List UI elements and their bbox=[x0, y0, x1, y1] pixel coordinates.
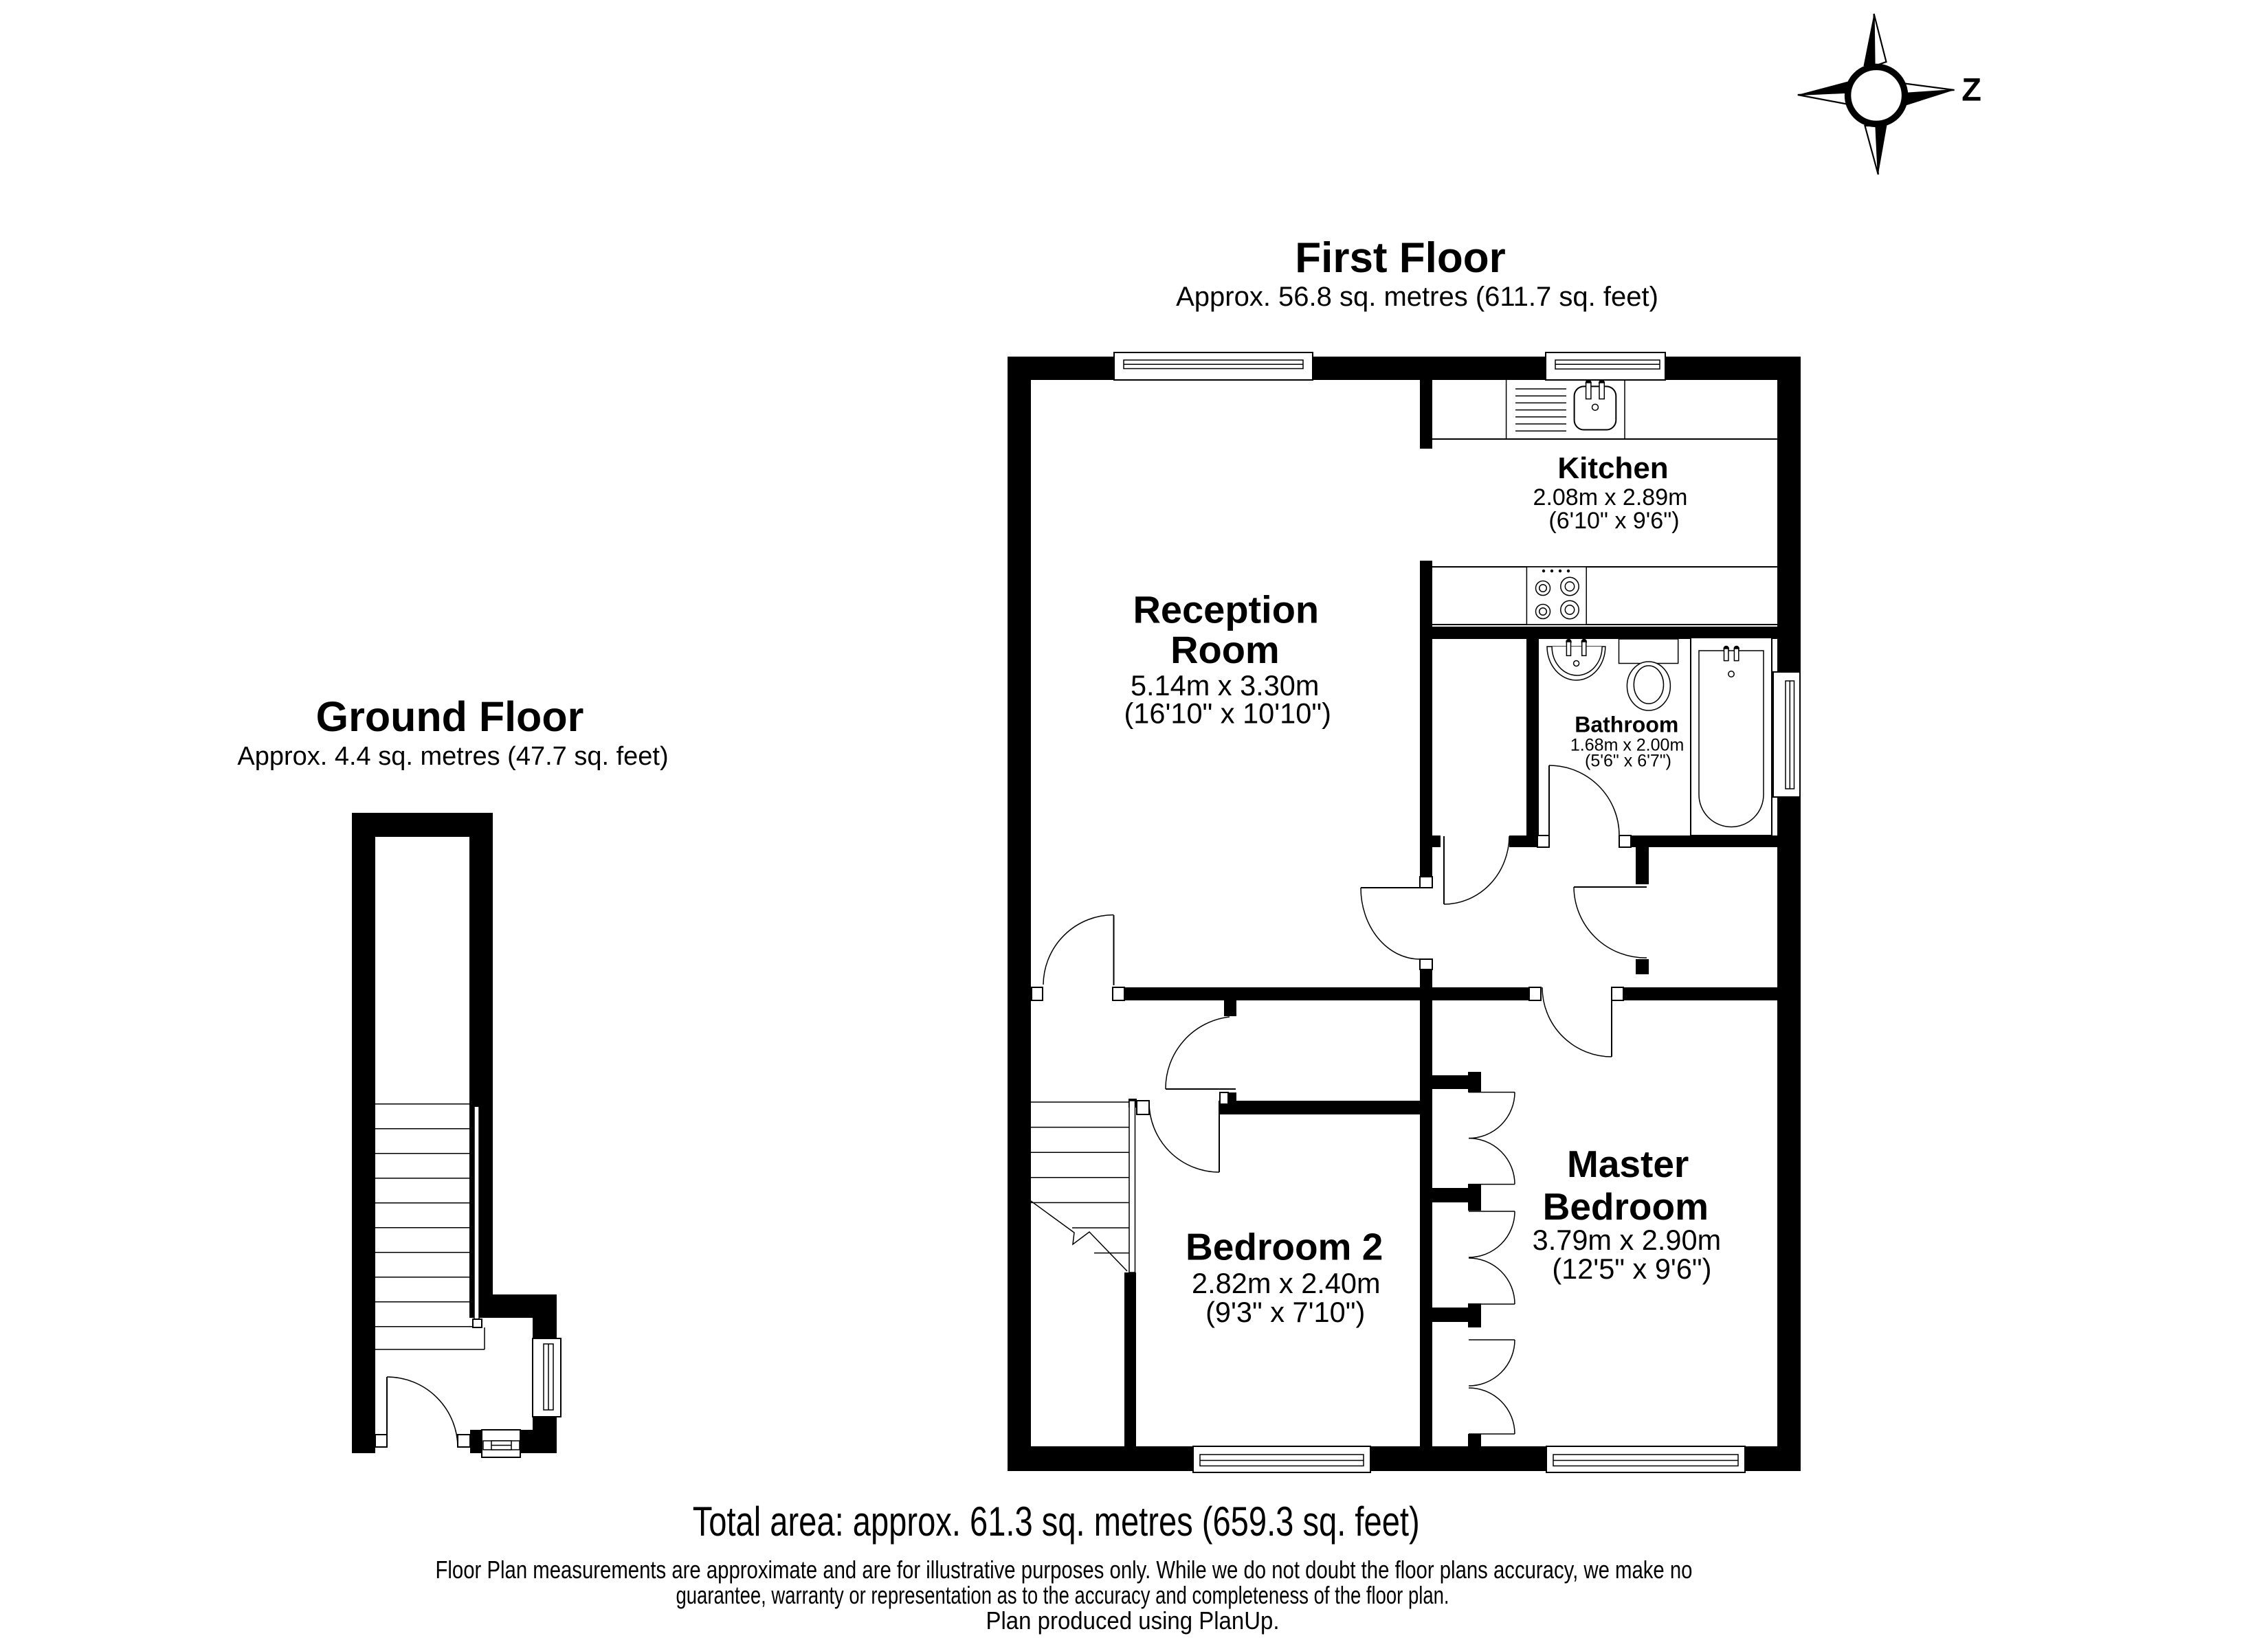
svg-text:Ground Floor: Ground Floor bbox=[316, 693, 584, 740]
svg-text:(5'6" x 6'7"): (5'6" x 6'7") bbox=[1585, 752, 1671, 771]
svg-text:First Floor: First Floor bbox=[1295, 234, 1506, 282]
svg-text:Master: Master bbox=[1567, 1143, 1689, 1185]
svg-text:Z: Z bbox=[1961, 71, 1981, 108]
svg-text:Total area: approx. 61.3 sq. m: Total area: approx. 61.3 sq. metres (659… bbox=[693, 1499, 1420, 1545]
svg-text:Room: Room bbox=[1170, 628, 1280, 671]
svg-text:Reception: Reception bbox=[1133, 588, 1319, 631]
svg-text:2.08m x 2.89m: 2.08m x 2.89m bbox=[1533, 484, 1688, 511]
svg-text:guarantee, warranty or represe: guarantee, warranty or representation as… bbox=[676, 1581, 1449, 1609]
svg-text:Bathroom: Bathroom bbox=[1575, 713, 1678, 737]
svg-text:Bedroom: Bedroom bbox=[1543, 1185, 1709, 1228]
svg-text:Bedroom 2: Bedroom 2 bbox=[1186, 1226, 1383, 1268]
svg-text:(6'10" x 9'6"): (6'10" x 9'6") bbox=[1548, 508, 1679, 534]
svg-text:Approx. 4.4 sq. metres (47.7 s: Approx. 4.4 sq. metres (47.7 sq. feet) bbox=[237, 742, 668, 771]
svg-text:Floor Plan measurements are ap: Floor Plan measurements are approximate … bbox=[436, 1556, 1693, 1584]
svg-text:Plan produced using PlanUp.: Plan produced using PlanUp. bbox=[986, 1606, 1280, 1635]
svg-text:(12'5" x 9'6"): (12'5" x 9'6") bbox=[1552, 1253, 1711, 1285]
svg-text:Approx. 56.8 sq. metres (611.7: Approx. 56.8 sq. metres (611.7 sq. feet) bbox=[1176, 282, 1658, 312]
svg-text:2.82m x 2.40m: 2.82m x 2.40m bbox=[1192, 1267, 1381, 1299]
svg-text:(16'10" x 10'10"): (16'10" x 10'10") bbox=[1124, 697, 1331, 730]
svg-text:3.79m x 2.90m: 3.79m x 2.90m bbox=[1533, 1224, 1722, 1256]
svg-text:(9'3" x 7'10"): (9'3" x 7'10") bbox=[1205, 1296, 1365, 1328]
svg-text:Kitchen: Kitchen bbox=[1557, 451, 1668, 485]
